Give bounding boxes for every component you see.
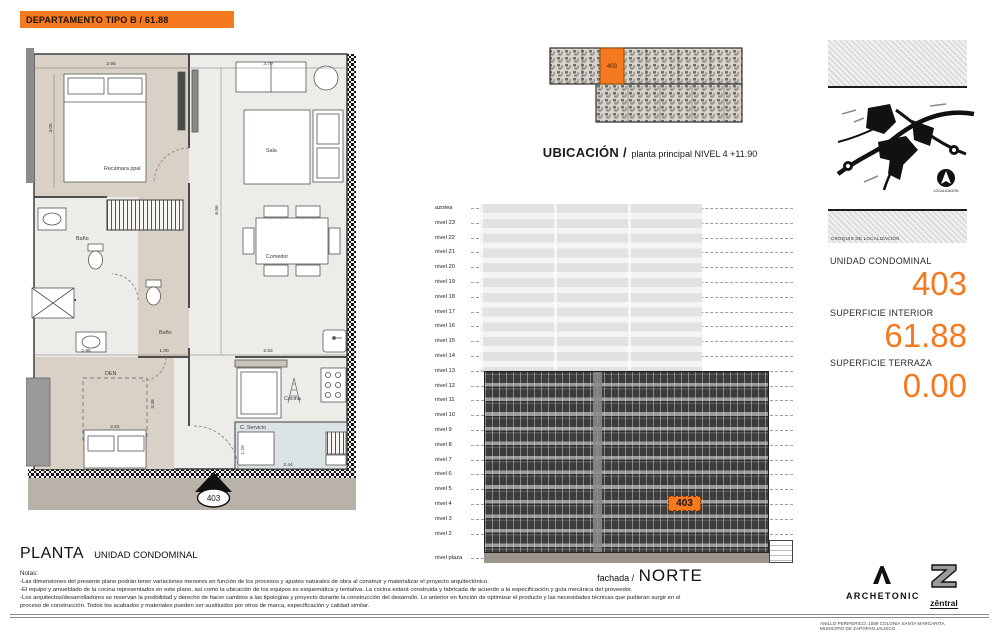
neighbor-block xyxy=(26,378,50,466)
location-plan: 403 xyxy=(548,42,748,127)
facade-caption-name: NORTE xyxy=(639,566,703,585)
boundary-hatch-right xyxy=(347,54,356,478)
elevation-core xyxy=(593,372,602,552)
sheet-title-bar: DEPARTAMENTO TIPO B / 61.88 xyxy=(20,11,234,28)
room-label-den: DEN xyxy=(105,371,116,377)
facade-caption-prefix: fachada / xyxy=(597,573,634,583)
room-label-comedor: Comedor xyxy=(266,254,288,260)
level-label: nivel 17 xyxy=(435,309,471,315)
level-label: nivel 8 xyxy=(435,442,471,448)
sheet-title: DEPARTAMENTO TIPO B / 61.88 xyxy=(26,15,168,25)
elevation-ground xyxy=(484,553,784,563)
project-address: ANILLO PERIFÉRICO, 1089 COLONIA SANTA MA… xyxy=(820,621,946,632)
plan-title-sub: UNIDAD CONDOMINAL xyxy=(94,550,197,561)
level-label: nivel 18 xyxy=(435,294,471,300)
level-label: nivel 23 xyxy=(435,220,471,226)
ubicacion-title: UBICACIÓN / xyxy=(543,145,627,160)
plan-title-main: PLANTA xyxy=(20,545,84,562)
map-blocks xyxy=(866,104,934,180)
location-map: LOCALIZACIÓN xyxy=(834,92,978,196)
floor-plan: 2.95 3.70 3.05 2.96 1.00 2.53 6.56 3.38 … xyxy=(26,48,358,518)
ubicacion-caption: UBICACIÓN / planta principal NIVEL 4 +11… xyxy=(520,144,780,162)
corridor-band xyxy=(28,478,356,510)
compass-label: LOCALIZACIÓN xyxy=(934,188,959,193)
svg-text:2.95: 2.95 xyxy=(106,61,116,67)
elevation-lower-floors xyxy=(484,371,769,553)
level-label: nivel 15 xyxy=(435,338,471,344)
svg-text:2.44: 2.44 xyxy=(283,462,293,468)
hatched-band-top xyxy=(828,40,967,88)
hatched-band-croquis: CROQUIS DE LOCALIZACIÓN xyxy=(828,209,967,243)
neighbor-wall xyxy=(26,48,34,183)
boundary-hatch-bottom xyxy=(28,469,356,478)
room-label-sala: Sala xyxy=(266,148,277,154)
compass-icon xyxy=(937,169,955,187)
archetonic-logo: ARCHETONIC xyxy=(846,566,918,601)
elevation-stairs xyxy=(769,540,793,563)
svg-text:6.56: 6.56 xyxy=(214,205,220,215)
svg-text:1.00: 1.00 xyxy=(159,348,169,354)
level-label: nivel 21 xyxy=(435,249,471,255)
note-line: -El equipo y amueblado de la cocina repr… xyxy=(20,587,795,593)
level-label: nivel 6 xyxy=(435,471,471,477)
zentral-mark-icon xyxy=(931,564,957,588)
svg-text:3.38: 3.38 xyxy=(150,399,156,409)
level-label: nivel 12 xyxy=(435,383,471,389)
room-label-servicio: C. Servicio xyxy=(240,425,266,431)
level-label: nivel 10 xyxy=(435,412,471,418)
address-line-2: MUNICIPIO DE ZAPOPAN JALISCO. xyxy=(820,626,897,631)
svg-text:2.96: 2.96 xyxy=(81,348,91,354)
facade-caption: fachada / NORTE xyxy=(520,566,780,586)
superficie-interior-value: 61.88 xyxy=(828,319,967,353)
map-roundabout-left-center xyxy=(846,164,850,168)
room-label-bano-2: Baño xyxy=(159,330,172,336)
svg-text:3.05: 3.05 xyxy=(48,123,54,133)
sheet: DEPARTAMENTO TIPO B / 61.88 xyxy=(0,0,999,641)
level-label: nivel 19 xyxy=(435,279,471,285)
zentral-wordmark: zēntral xyxy=(930,598,957,609)
room-label-bano-1: Baño xyxy=(76,236,89,242)
level-label: nivel 20 xyxy=(435,264,471,270)
level-label: nivel 22 xyxy=(435,235,471,241)
superficie-terraza-value: 0.00 xyxy=(828,369,967,403)
address-line-1: ANILLO PERIFÉRICO, 1089 COLONIA SANTA MA… xyxy=(820,621,946,626)
archetonic-mark-icon xyxy=(871,566,893,584)
plan-title: PLANTAUNIDAD CONDOMINAL xyxy=(20,545,198,563)
svg-text:2.61: 2.61 xyxy=(110,424,120,430)
level-label: nivel 4 xyxy=(435,501,471,507)
notes-title: Notas: xyxy=(20,570,38,577)
level-label: nivel 2 xyxy=(435,531,471,537)
room-label-cocina: Cocina xyxy=(284,396,301,402)
level-label: nivel 5 xyxy=(435,486,471,492)
unidad-condominal-value: 403 xyxy=(828,267,967,301)
footer-divider xyxy=(10,614,989,618)
elevation-unit-marker: 403 xyxy=(668,496,701,511)
level-label: nivel 11 xyxy=(435,397,471,403)
living-furniture xyxy=(236,62,343,184)
closet xyxy=(107,200,183,230)
masterplan-row-bottom xyxy=(596,84,742,122)
level-label: nivel 7 xyxy=(435,457,471,463)
archetonic-wordmark: ARCHETONIC xyxy=(846,591,918,601)
note-line: proceso de construcción. Todos los acaba… xyxy=(20,603,795,609)
svg-text:2.53: 2.53 xyxy=(263,348,273,354)
svg-text:3.70: 3.70 xyxy=(263,61,273,67)
map-roundabout-right-center xyxy=(952,148,956,152)
level-label: nivel plaza xyxy=(435,555,471,561)
croquis-label: CROQUIS DE LOCALIZACIÓN xyxy=(831,236,900,241)
level-label: nivel 3 xyxy=(435,516,471,522)
room-label-recamara: Recámara ppal xyxy=(104,166,141,172)
highlighted-unit-number: 403 xyxy=(607,64,618,70)
level-label: nivel 16 xyxy=(435,323,471,329)
entry-unit-number: 403 xyxy=(207,494,221,503)
svg-text:1.20: 1.20 xyxy=(240,445,246,455)
elevation-upper-floors xyxy=(480,204,702,371)
building-elevation: azoteanivel 23nivel 22nivel 21nivel 20ni… xyxy=(435,200,795,590)
zentral-logo: zēntral xyxy=(924,564,964,611)
note-line: -Los arquitectos/desarrolladores se rese… xyxy=(20,595,795,601)
level-label: nivel 14 xyxy=(435,353,471,359)
level-label: azotea xyxy=(435,205,471,211)
level-label: nivel 13 xyxy=(435,368,471,374)
ubicacion-subtitle: planta principal NIVEL 4 +11.90 xyxy=(631,149,757,159)
level-label: nivel 9 xyxy=(435,427,471,433)
